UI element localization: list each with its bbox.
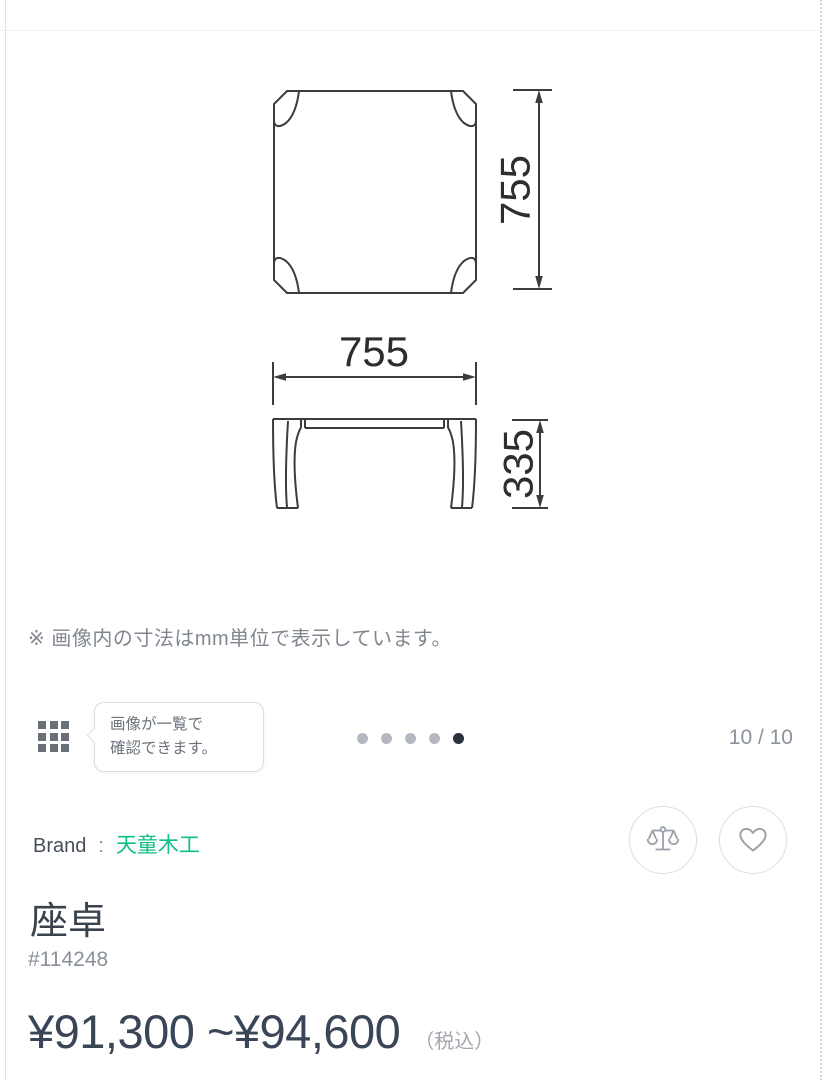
leg-top-left: [274, 91, 299, 126]
favorite-button[interactable]: [719, 806, 787, 874]
gallery-tooltip: 画像が一覧で 確認できます。: [94, 702, 264, 772]
tax-note: （税込）: [414, 1025, 494, 1054]
front-view-width-label: 755: [339, 328, 409, 375]
compare-button[interactable]: [629, 806, 697, 874]
pagination-dot[interactable]: [405, 733, 416, 744]
pagination-dot-active[interactable]: [453, 733, 464, 744]
gallery-tooltip-line2: 確認できます。: [110, 737, 255, 761]
product-price: ¥91,300 ~¥94,600: [28, 1004, 400, 1059]
balance-scale-icon: [644, 821, 682, 859]
thumbnail-grid-icon[interactable]: [38, 721, 69, 753]
front-view-height-label: 335: [495, 429, 542, 499]
dimension-diagram: 755 755: [0, 0, 823, 570]
page-indicator: 10 / 10: [729, 726, 793, 750]
product-sku: #114248: [28, 948, 108, 972]
leg-bottom-left: [274, 258, 299, 293]
brand-name[interactable]: 天童木工: [116, 834, 200, 857]
heart-icon: [734, 821, 772, 859]
dimension-unit-note: ※ 画像内の寸法はmm単位で表示しています。: [28, 622, 452, 651]
top-view: 755: [274, 90, 552, 293]
front-view: 755 3: [273, 328, 548, 508]
pagination-dot[interactable]: [429, 733, 440, 744]
pagination-dot[interactable]: [357, 733, 368, 744]
product-detail-page: 755 755: [0, 0, 823, 1080]
leg-top-right: [451, 91, 476, 126]
pagination-dot[interactable]: [381, 733, 392, 744]
top-view-height-label: 755: [492, 155, 539, 225]
gallery-tooltip-line1: 画像が一覧で: [110, 713, 255, 737]
pagination-dots: [357, 733, 464, 744]
brand-separator: :: [98, 835, 104, 857]
brand-label: Brand: [33, 835, 86, 857]
price-row: ¥91,300 ~¥94,600 （税込）: [28, 1004, 494, 1059]
brand-row: Brand:天童木工: [33, 829, 200, 859]
leg-bottom-right: [451, 258, 476, 293]
product-title: 座卓: [30, 890, 106, 945]
